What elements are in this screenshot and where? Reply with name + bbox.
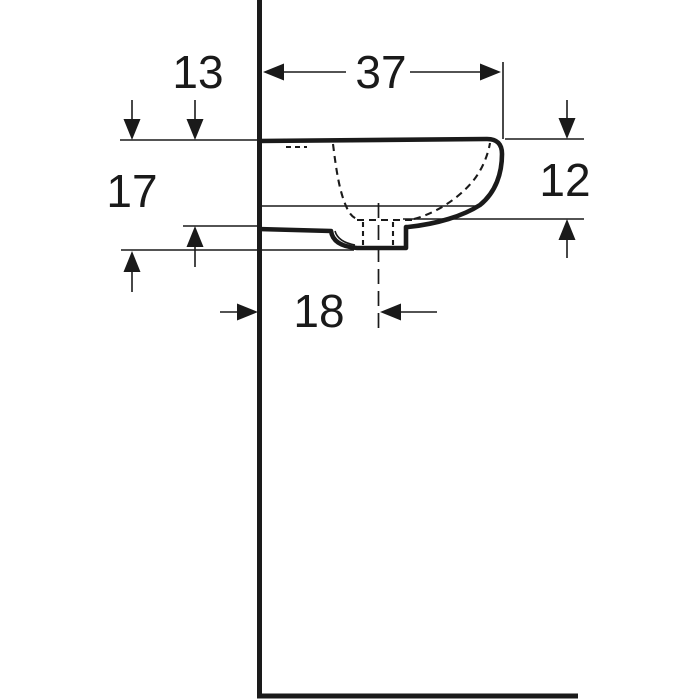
arrow-left-icon [263,64,284,81]
dimension-back-offset: 13 [172,46,223,267]
arrow-up-icon [187,226,204,247]
bowl-left-dashed-curve [333,144,357,219]
arrow-left-icon [380,304,401,321]
dim-label-18: 18 [293,285,344,337]
dimension-front-height: 12 [539,100,590,258]
dim-label-12: 12 [539,154,590,206]
dimension-drain-offset: 18 [220,285,437,337]
dimension-overall-height: 17 [106,100,157,292]
arrow-up-icon [124,251,141,272]
dimension-top-width: 37 [263,46,501,98]
dim-label-13: 13 [172,46,223,98]
basin-profile-path [258,139,502,248]
arrow-right-icon [237,304,258,321]
arrow-up-icon [559,219,576,240]
dim-label-17: 17 [106,165,157,217]
washbasin-dimension-drawing: 37 13 17 12 18 [0,0,700,700]
dim-label-37: 37 [355,46,406,98]
diagram-canvas: 37 13 17 12 18 [0,0,700,700]
arrow-down-icon [559,118,576,139]
arrow-down-icon [187,119,204,140]
arrow-down-icon [124,119,141,140]
arrow-right-icon [480,64,501,81]
basin-outline [258,139,502,248]
